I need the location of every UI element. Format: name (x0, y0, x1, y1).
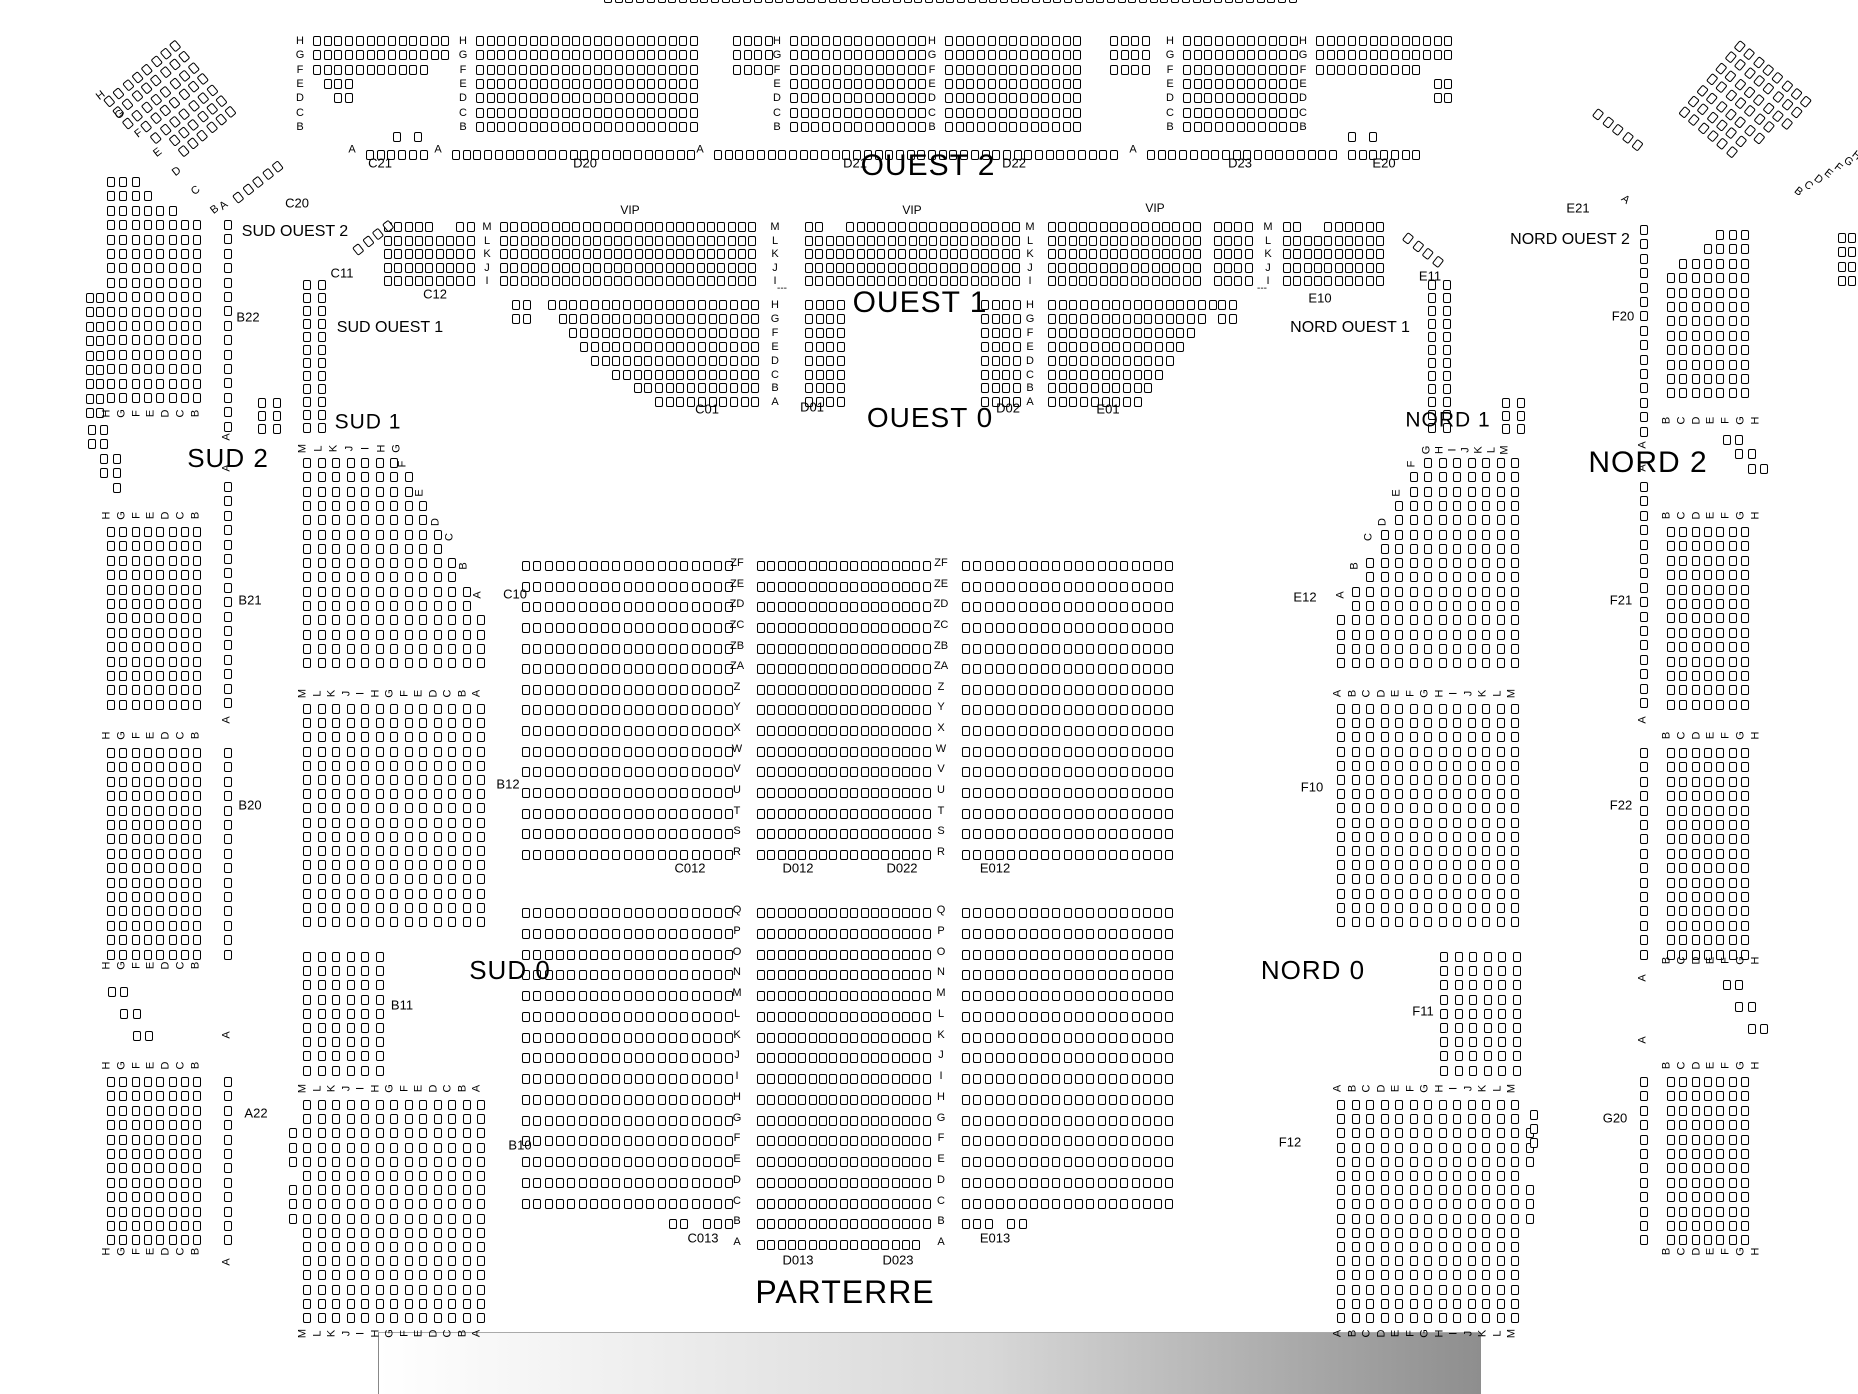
seat[interactable] (1412, 50, 1420, 60)
seat[interactable] (303, 1023, 311, 1033)
seat[interactable] (1468, 472, 1476, 482)
seat[interactable] (811, 36, 819, 46)
seat[interactable] (1007, 950, 1015, 960)
seat[interactable] (778, 1053, 786, 1063)
seat[interactable] (169, 350, 177, 360)
seat[interactable] (960, 276, 968, 286)
seat[interactable] (1059, 383, 1067, 393)
seat[interactable] (612, 829, 620, 839)
seat[interactable] (741, 314, 749, 324)
seat[interactable] (1482, 1313, 1490, 1323)
seat[interactable] (871, 685, 879, 695)
seat[interactable] (545, 1136, 553, 1146)
seat[interactable] (193, 921, 201, 931)
seat[interactable] (798, 705, 806, 715)
seat[interactable] (744, 50, 752, 60)
seat[interactable] (1052, 108, 1060, 118)
seat[interactable] (877, 263, 885, 273)
seat[interactable] (1482, 832, 1490, 842)
seat[interactable] (434, 530, 442, 540)
seat[interactable] (767, 991, 775, 1001)
seat[interactable] (1052, 1178, 1060, 1188)
seat[interactable] (892, 1178, 900, 1188)
seat[interactable] (1497, 917, 1505, 927)
seat[interactable] (405, 732, 413, 742)
seat[interactable] (405, 874, 413, 884)
seat[interactable] (1376, 263, 1384, 273)
seat[interactable] (463, 704, 471, 714)
seat[interactable] (512, 300, 520, 310)
seat[interactable] (1359, 150, 1367, 160)
seat[interactable] (361, 1157, 369, 1167)
seat[interactable] (1497, 1128, 1505, 1138)
seat[interactable] (420, 65, 428, 75)
seat[interactable] (1424, 718, 1432, 728)
seat[interactable] (669, 788, 677, 798)
seat[interactable] (86, 293, 94, 303)
seat[interactable] (463, 832, 471, 842)
seat[interactable] (1258, 122, 1266, 132)
seat[interactable] (1012, 263, 1020, 273)
seat[interactable] (113, 468, 121, 478)
seat[interactable] (1086, 970, 1094, 980)
seat[interactable] (1143, 664, 1151, 674)
seat[interactable] (923, 788, 931, 798)
seat[interactable] (1020, 122, 1028, 132)
seat[interactable] (1165, 1157, 1173, 1167)
seat[interactable] (522, 929, 530, 939)
seat[interactable] (487, 36, 495, 46)
seat[interactable] (579, 929, 587, 939)
seat[interactable] (798, 929, 806, 939)
seat[interactable] (1337, 718, 1345, 728)
seat[interactable] (1234, 222, 1242, 232)
seat[interactable] (1482, 1256, 1490, 1266)
seat[interactable] (892, 602, 900, 612)
seat[interactable] (405, 1313, 413, 1323)
seat[interactable] (1011, 0, 1019, 3)
seat[interactable] (1511, 1270, 1519, 1280)
seat[interactable] (626, 36, 634, 46)
seat[interactable] (1165, 929, 1173, 939)
seat[interactable] (419, 718, 427, 728)
seat[interactable] (1376, 276, 1384, 286)
seat[interactable] (700, 0, 708, 3)
seat[interactable] (999, 122, 1007, 132)
seat[interactable] (956, 50, 964, 60)
seat[interactable] (1165, 1095, 1173, 1105)
seat[interactable] (655, 356, 663, 366)
seat[interactable] (1314, 263, 1322, 273)
seat[interactable] (778, 1033, 786, 1043)
seat[interactable] (626, 108, 634, 118)
seat[interactable] (647, 36, 655, 46)
seat[interactable] (156, 921, 164, 931)
seat[interactable] (332, 889, 340, 899)
seat[interactable] (687, 314, 695, 324)
seat[interactable] (156, 585, 164, 595)
seat[interactable] (144, 527, 152, 537)
seat[interactable] (361, 1037, 369, 1047)
seat[interactable] (1048, 397, 1056, 407)
seat[interactable] (1381, 761, 1389, 771)
seat[interactable] (318, 1009, 326, 1019)
seat[interactable] (318, 1143, 326, 1153)
seat[interactable] (1086, 850, 1094, 860)
seat[interactable] (1154, 1136, 1162, 1146)
seat[interactable] (818, 0, 826, 3)
seat[interactable] (556, 664, 564, 674)
seat[interactable] (1440, 952, 1448, 962)
seat[interactable] (193, 1135, 201, 1145)
seat[interactable] (646, 644, 654, 654)
seat[interactable] (1370, 50, 1378, 60)
seat[interactable] (132, 393, 140, 403)
seat[interactable] (703, 809, 711, 819)
seat[interactable] (181, 278, 189, 288)
seat[interactable] (590, 644, 598, 654)
seat[interactable] (741, 383, 749, 393)
seat[interactable] (303, 1157, 311, 1167)
seat[interactable] (590, 561, 598, 571)
seat[interactable] (717, 236, 725, 246)
seat[interactable] (646, 788, 654, 798)
seat[interactable] (590, 991, 598, 1001)
seat[interactable] (405, 1100, 413, 1110)
seat[interactable] (463, 874, 471, 884)
seat[interactable] (1337, 1199, 1345, 1209)
seat[interactable] (923, 685, 931, 695)
seat[interactable] (1434, 36, 1442, 46)
seat[interactable] (811, 50, 819, 60)
seat[interactable] (714, 809, 722, 819)
seat[interactable] (1468, 1214, 1476, 1224)
seat[interactable] (1497, 747, 1505, 757)
seat[interactable] (744, 65, 752, 75)
seat[interactable] (361, 789, 369, 799)
seat[interactable] (1041, 50, 1049, 60)
seat[interactable] (1058, 263, 1066, 273)
seat[interactable] (1075, 726, 1083, 736)
seat[interactable] (390, 832, 398, 842)
seat[interactable] (1234, 276, 1242, 286)
seat[interactable] (1179, 150, 1187, 160)
seat[interactable] (593, 276, 601, 286)
seat[interactable] (1369, 132, 1377, 142)
seat[interactable] (405, 472, 413, 482)
seat[interactable] (347, 458, 355, 468)
seat[interactable] (1453, 1228, 1461, 1238)
seat[interactable] (1110, 249, 1118, 259)
seat[interactable] (1064, 623, 1072, 633)
seat[interactable] (1019, 1012, 1027, 1022)
seat[interactable] (405, 644, 413, 654)
seat[interactable] (303, 558, 311, 568)
seat[interactable] (809, 1240, 817, 1250)
seat[interactable] (224, 234, 232, 244)
seat[interactable] (912, 1033, 920, 1043)
seat[interactable] (132, 307, 140, 317)
seat[interactable] (156, 700, 164, 710)
seat[interactable] (857, 222, 865, 232)
seat[interactable] (977, 122, 985, 132)
seat[interactable] (367, 65, 375, 75)
seat[interactable] (985, 908, 993, 918)
seat[interactable] (303, 903, 311, 913)
seat[interactable] (767, 747, 775, 757)
seat[interactable] (1424, 1157, 1432, 1167)
seat[interactable] (1110, 65, 1118, 75)
seat[interactable] (1410, 1157, 1418, 1167)
seat[interactable] (923, 991, 931, 1001)
seat[interactable] (809, 809, 817, 819)
seat[interactable] (1019, 602, 1027, 612)
seat[interactable] (1089, 222, 1097, 232)
seat[interactable] (1052, 1136, 1060, 1146)
seat[interactable] (590, 829, 598, 839)
seat[interactable] (1007, 829, 1015, 839)
seat[interactable] (1102, 342, 1110, 352)
seat[interactable] (1099, 150, 1107, 160)
seat[interactable] (361, 530, 369, 540)
seat[interactable] (144, 628, 152, 638)
seat[interactable] (1395, 1228, 1403, 1238)
seat[interactable] (624, 1136, 632, 1146)
seat[interactable] (668, 0, 676, 3)
seat[interactable] (1395, 846, 1403, 856)
seat[interactable] (144, 921, 152, 931)
seat[interactable] (714, 1033, 722, 1043)
seat[interactable] (181, 379, 189, 389)
seat[interactable] (119, 191, 127, 201)
seat[interactable] (778, 602, 786, 612)
seat[interactable] (1154, 1033, 1162, 1043)
seat[interactable] (303, 775, 311, 785)
seat[interactable] (347, 803, 355, 813)
seat[interactable] (361, 572, 369, 582)
seat[interactable] (1482, 1228, 1490, 1238)
seat[interactable] (590, 809, 598, 819)
seat[interactable] (757, 991, 765, 1001)
seat[interactable] (318, 761, 326, 771)
seat[interactable] (181, 892, 189, 902)
seat[interactable] (556, 829, 564, 839)
seat[interactable] (303, 995, 311, 1005)
seat[interactable] (1391, 36, 1399, 46)
seat[interactable] (601, 1199, 609, 1209)
seat[interactable] (945, 50, 953, 60)
seat[interactable] (144, 206, 152, 216)
seat[interactable] (1337, 1171, 1345, 1181)
seat[interactable] (448, 718, 456, 728)
seat[interactable] (334, 65, 342, 75)
seat[interactable] (1098, 829, 1106, 839)
seat[interactable] (1013, 356, 1021, 366)
seat[interactable] (669, 1178, 677, 1188)
seat[interactable] (1109, 767, 1117, 777)
seat[interactable] (898, 263, 906, 273)
seat[interactable] (923, 908, 931, 918)
seat[interactable] (1226, 65, 1234, 75)
seat[interactable] (1109, 1053, 1117, 1063)
seat[interactable] (107, 350, 115, 360)
seat[interactable] (909, 222, 917, 232)
seat[interactable] (666, 276, 674, 286)
seat[interactable] (912, 1136, 920, 1146)
seat[interactable] (562, 93, 570, 103)
seat[interactable] (809, 1199, 817, 1209)
seat[interactable] (376, 980, 384, 990)
seat[interactable] (925, 0, 933, 3)
seat[interactable] (1497, 530, 1505, 540)
seat[interactable] (836, 236, 844, 246)
seat[interactable] (463, 860, 471, 870)
seat[interactable] (1098, 644, 1106, 654)
seat[interactable] (1098, 1053, 1106, 1063)
seat[interactable] (850, 1240, 858, 1250)
seat[interactable] (367, 36, 375, 46)
seat[interactable] (1381, 587, 1389, 597)
seat[interactable] (788, 829, 796, 839)
seat[interactable] (1075, 1136, 1083, 1146)
seat[interactable] (156, 393, 164, 403)
seat[interactable] (1100, 236, 1108, 246)
seat[interactable] (644, 314, 652, 324)
seat[interactable] (996, 1157, 1004, 1167)
seat[interactable] (545, 850, 553, 860)
seat[interactable] (757, 1095, 765, 1105)
seat[interactable] (376, 818, 384, 828)
seat[interactable] (556, 950, 564, 960)
seat[interactable] (658, 970, 666, 980)
seat[interactable] (519, 65, 527, 75)
seat[interactable] (655, 276, 663, 286)
seat[interactable] (1352, 718, 1360, 728)
seat[interactable] (881, 1053, 889, 1063)
seat[interactable] (1482, 889, 1490, 899)
seat[interactable] (840, 1095, 848, 1105)
seat[interactable] (144, 191, 152, 201)
seat[interactable] (405, 601, 413, 611)
seat[interactable] (181, 292, 189, 302)
seat[interactable] (1283, 236, 1291, 246)
seat[interactable] (169, 685, 177, 695)
seat[interactable] (1381, 917, 1389, 927)
seat[interactable] (1154, 705, 1162, 715)
seat[interactable] (655, 263, 663, 273)
seat[interactable] (676, 263, 684, 273)
seat[interactable] (361, 995, 369, 1005)
seat[interactable] (376, 1313, 384, 1323)
seat[interactable] (1069, 300, 1077, 310)
seat[interactable] (669, 561, 677, 571)
seat[interactable] (86, 408, 94, 418)
seat[interactable] (361, 544, 369, 554)
seat[interactable] (1162, 236, 1170, 246)
seat[interactable] (522, 1199, 530, 1209)
seat[interactable] (1424, 487, 1432, 497)
seat[interactable] (1162, 276, 1170, 286)
seat[interactable] (676, 328, 684, 338)
seat[interactable] (1052, 767, 1060, 777)
seat[interactable] (541, 236, 549, 246)
seat[interactable] (1423, 36, 1431, 46)
seat[interactable] (757, 809, 765, 819)
seat[interactable] (844, 93, 852, 103)
seat[interactable] (144, 1135, 152, 1145)
seat[interactable] (624, 685, 632, 695)
seat[interactable] (1030, 1033, 1038, 1043)
seat[interactable] (533, 1074, 541, 1084)
seat[interactable] (132, 1221, 140, 1231)
seat[interactable] (604, 122, 612, 132)
seat[interactable] (1410, 889, 1418, 899)
seat[interactable] (463, 1128, 471, 1138)
seat[interactable] (923, 767, 931, 777)
seat[interactable] (1154, 561, 1162, 571)
seat[interactable] (819, 1157, 827, 1167)
seat[interactable] (361, 601, 369, 611)
seat[interactable] (1511, 1214, 1519, 1224)
seat[interactable] (1335, 249, 1343, 259)
seat[interactable] (751, 370, 759, 380)
seat[interactable] (1141, 276, 1149, 286)
seat[interactable] (840, 644, 848, 654)
seat[interactable] (497, 108, 505, 118)
seat[interactable] (1410, 846, 1418, 856)
seat[interactable] (692, 705, 700, 715)
seat[interactable] (786, 0, 794, 3)
seat[interactable] (1098, 1136, 1106, 1146)
seat[interactable] (1352, 658, 1360, 668)
seat[interactable] (1134, 300, 1142, 310)
seat[interactable] (1511, 501, 1519, 511)
seat[interactable] (1316, 50, 1324, 60)
seat[interactable] (778, 685, 786, 695)
seat[interactable] (156, 292, 164, 302)
seat[interactable] (962, 747, 970, 757)
seat[interactable] (181, 364, 189, 374)
seat[interactable] (1089, 150, 1097, 160)
seat[interactable] (1424, 1256, 1432, 1266)
seat[interactable] (1410, 530, 1418, 540)
seat[interactable] (1381, 1270, 1389, 1280)
seat[interactable] (669, 1033, 677, 1043)
seat[interactable] (144, 791, 152, 801)
seat[interactable] (1086, 788, 1094, 798)
seat[interactable] (419, 1285, 427, 1295)
seat[interactable] (169, 585, 177, 595)
seat[interactable] (1482, 458, 1490, 468)
seat[interactable] (390, 658, 398, 668)
seat[interactable] (698, 342, 706, 352)
seat[interactable] (655, 300, 663, 310)
seat[interactable] (973, 1199, 981, 1209)
seat[interactable] (1075, 664, 1083, 674)
seat[interactable] (881, 582, 889, 592)
seat[interactable] (1154, 1074, 1162, 1084)
seat[interactable] (448, 917, 456, 927)
seat[interactable] (637, 36, 645, 46)
seat[interactable] (590, 1157, 598, 1167)
seat[interactable] (973, 685, 981, 695)
seat[interactable] (1120, 747, 1128, 757)
seat[interactable] (1293, 263, 1301, 273)
seat[interactable] (962, 726, 970, 736)
seat[interactable] (556, 705, 564, 715)
seat[interactable] (717, 263, 725, 273)
seat[interactable] (289, 1128, 297, 1138)
